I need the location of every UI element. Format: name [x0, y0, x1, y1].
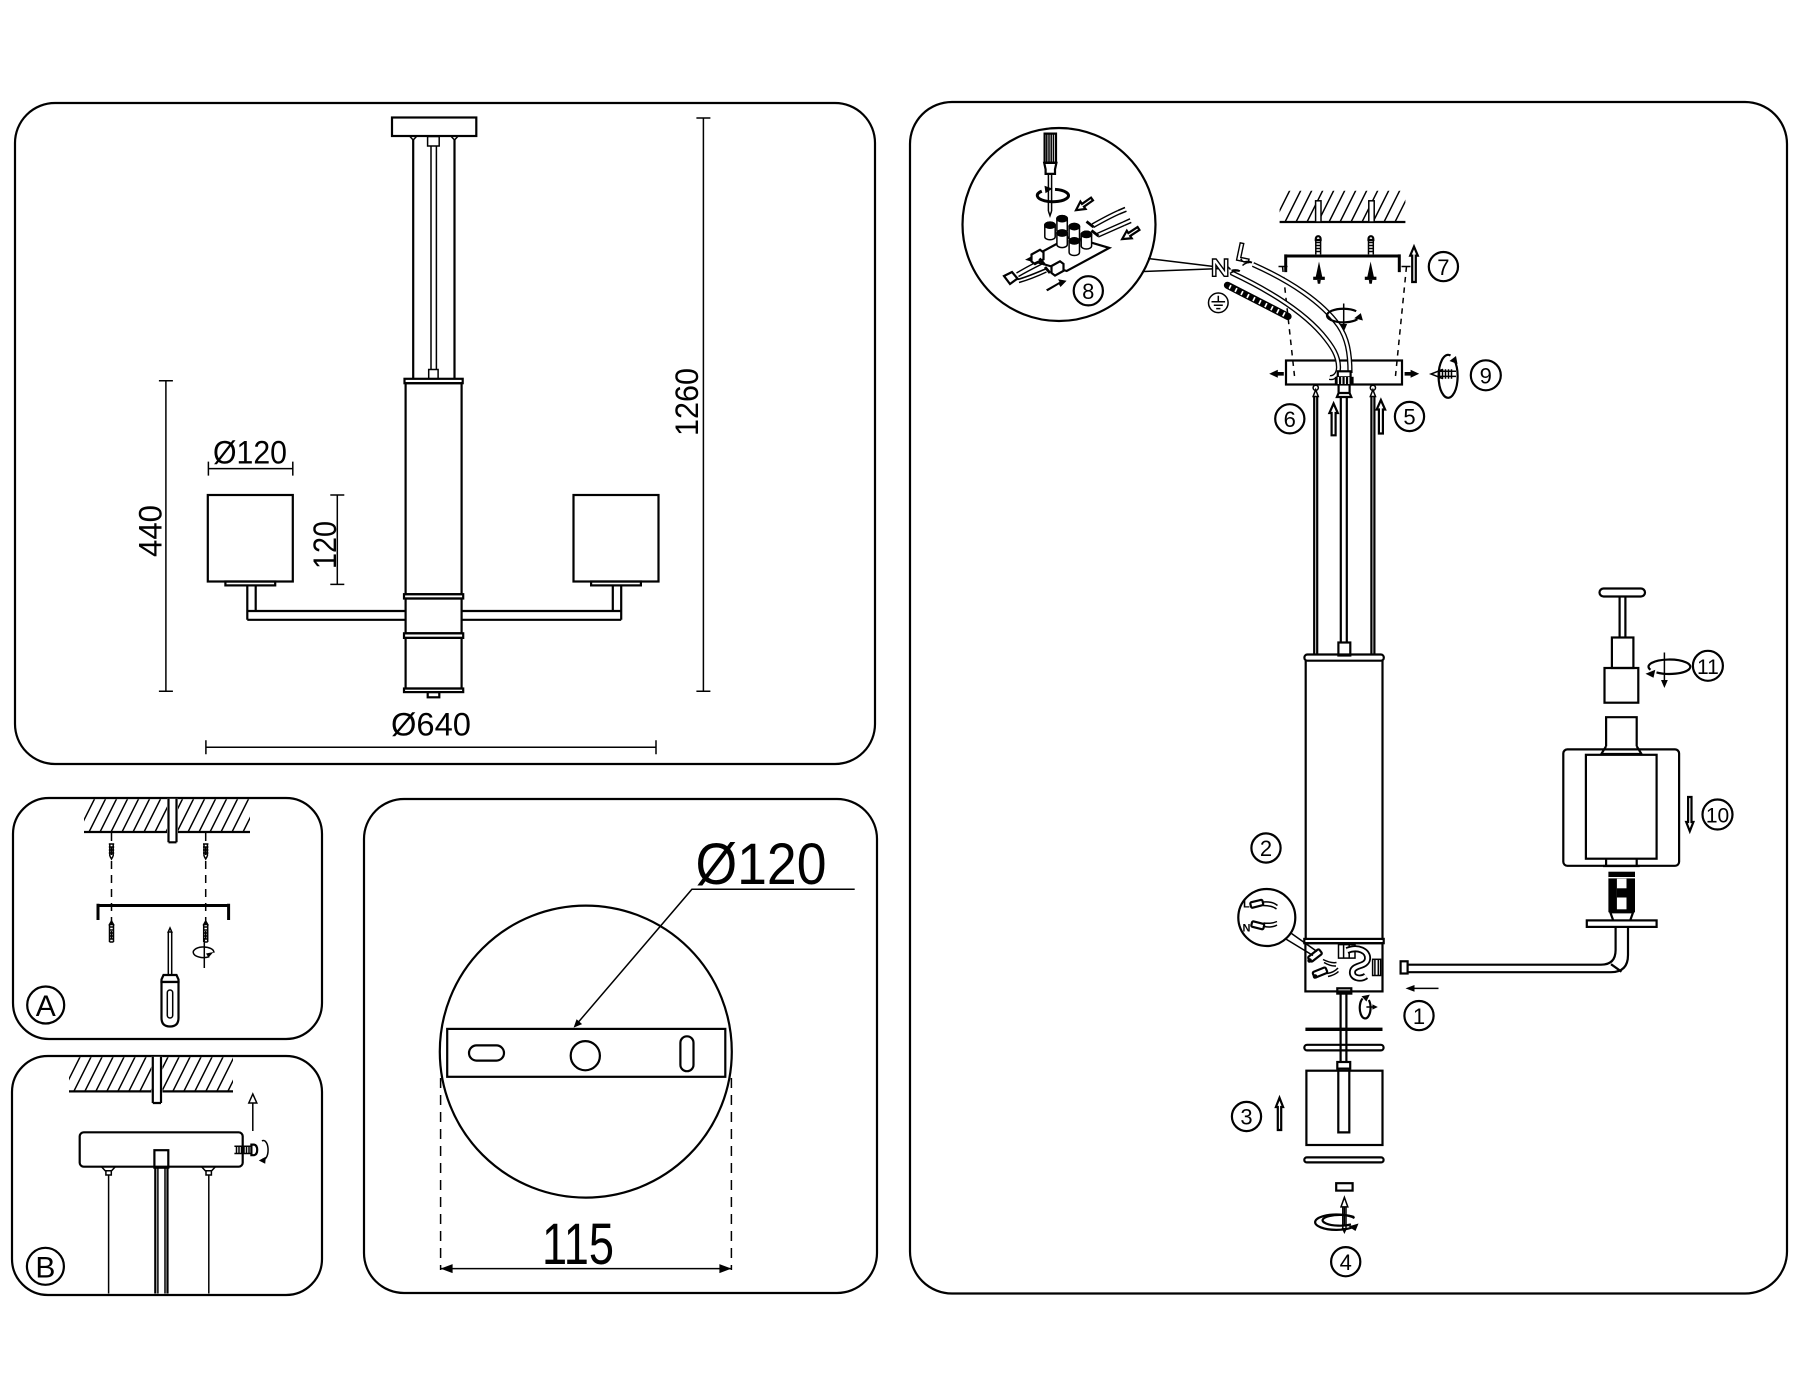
svg-text:7: 7 [1437, 255, 1449, 280]
svg-text:N: N [1243, 923, 1251, 935]
svg-text:L: L [1243, 899, 1250, 911]
svg-text:Ø120: Ø120 [213, 435, 287, 471]
svg-text:4: 4 [1340, 1250, 1352, 1275]
svg-text:115: 115 [542, 1212, 614, 1277]
svg-text:8: 8 [1082, 279, 1094, 304]
svg-text:9: 9 [1480, 364, 1492, 389]
svg-text:1: 1 [1413, 1004, 1425, 1029]
svg-text:10: 10 [1706, 805, 1729, 828]
svg-text:440: 440 [133, 505, 169, 557]
svg-text:A: A [36, 990, 56, 1023]
svg-text:B: B [35, 1251, 55, 1284]
svg-text:5: 5 [1403, 405, 1415, 430]
svg-text:Ø120: Ø120 [696, 832, 827, 897]
svg-text:Ø640: Ø640 [391, 707, 471, 743]
svg-text:120: 120 [307, 521, 343, 569]
svg-text:3: 3 [1240, 1105, 1252, 1130]
svg-text:11: 11 [1697, 656, 1719, 679]
svg-text:2: 2 [1260, 836, 1272, 861]
svg-text:1260: 1260 [669, 368, 705, 436]
svg-text:6: 6 [1284, 407, 1296, 432]
